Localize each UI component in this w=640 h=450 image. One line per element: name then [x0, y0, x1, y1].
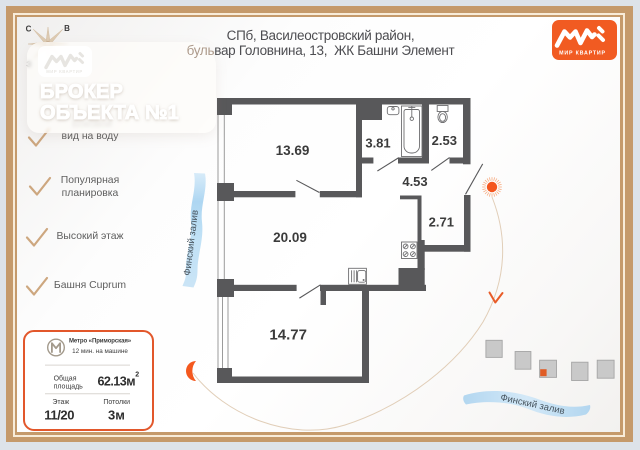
svg-text:14.77: 14.77 [269, 327, 307, 344]
svg-text:Потолки: Потолки [103, 399, 130, 406]
svg-text:Общая: Общая [53, 374, 76, 382]
svg-text:3м: 3м [107, 408, 124, 423]
svg-text:2.53: 2.53 [432, 133, 457, 148]
svg-text:62.13м: 62.13м [97, 375, 135, 389]
svg-text:3.81: 3.81 [365, 135, 390, 150]
svg-text:МИР КВАРТИР: МИР КВАРТИР [46, 69, 83, 74]
svg-text:20.09: 20.09 [273, 230, 307, 245]
svg-text:2.71: 2.71 [429, 214, 454, 229]
svg-text:11/20: 11/20 [44, 408, 74, 423]
svg-text:В: В [64, 24, 70, 33]
svg-text:Метро «Приморская»: Метро «Приморская» [68, 339, 131, 345]
svg-text:С: С [26, 25, 32, 34]
svg-text:13.69: 13.69 [276, 143, 310, 158]
svg-text:2: 2 [135, 372, 139, 379]
svg-text:Этаж: Этаж [52, 399, 69, 406]
svg-text:12 мин. на машине: 12 мин. на машине [72, 348, 128, 355]
svg-text:Финский залив: Финский залив [499, 392, 565, 417]
svg-text:МИР КВАРТИР: МИР КВАРТИР [559, 51, 606, 57]
svg-text:площадь: площадь [53, 383, 83, 390]
svg-text:4.53: 4.53 [402, 174, 427, 189]
